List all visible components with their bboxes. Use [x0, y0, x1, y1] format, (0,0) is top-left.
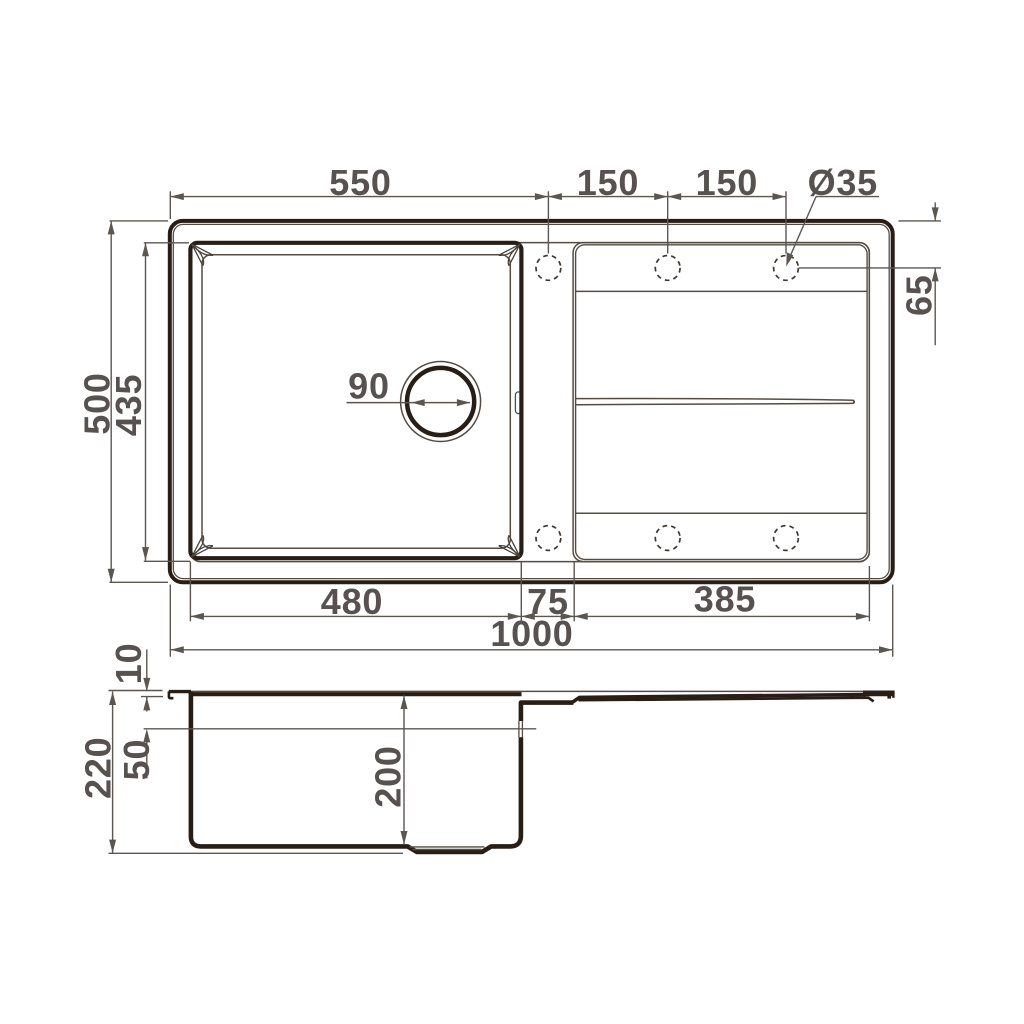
svg-text:1000: 1000: [490, 613, 573, 654]
svg-text:385: 385: [694, 579, 756, 620]
svg-text:550: 550: [329, 162, 391, 203]
svg-text:50: 50: [116, 739, 157, 781]
svg-text:150: 150: [696, 162, 758, 203]
svg-text:10: 10: [108, 643, 149, 685]
svg-text:65: 65: [898, 274, 939, 316]
svg-text:90: 90: [348, 366, 390, 407]
svg-text:480: 480: [321, 581, 383, 622]
svg-text:200: 200: [367, 745, 408, 807]
svg-text:150: 150: [577, 162, 639, 203]
svg-text:435: 435: [108, 374, 149, 436]
svg-text:220: 220: [78, 737, 119, 799]
